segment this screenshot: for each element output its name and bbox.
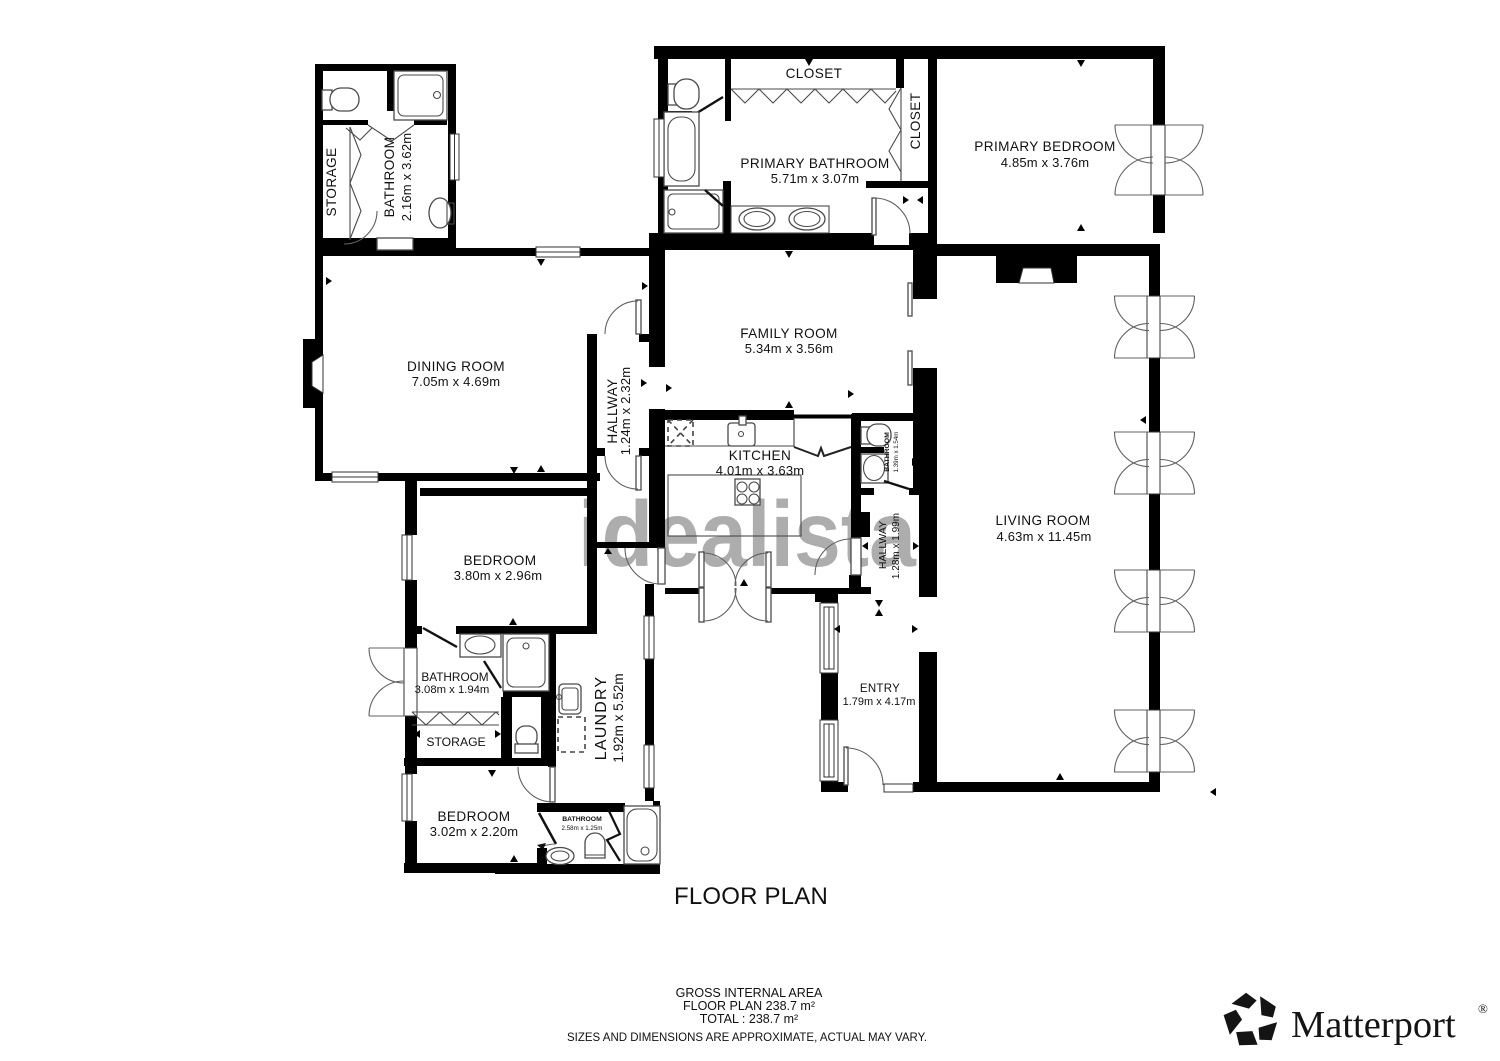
svg-text:3.80m x 2.96m: 3.80m x 2.96m <box>454 568 543 583</box>
svg-text:BATHROOM: BATHROOM <box>884 432 891 472</box>
svg-text:FLOOR PLAN: FLOOR PLAN <box>674 883 828 910</box>
svg-text:1.79m x 4.17m: 1.79m x 4.17m <box>843 696 916 708</box>
svg-text:3.02m x 2.20m: 3.02m x 2.20m <box>430 824 519 839</box>
svg-text:2.16m x 3.62m: 2.16m x 3.62m <box>399 133 414 222</box>
svg-text:BATHROOM: BATHROOM <box>562 816 602 823</box>
svg-text:KITCHEN: KITCHEN <box>729 448 791 463</box>
svg-text:2.58m x 1.25m: 2.58m x 1.25m <box>562 825 603 832</box>
svg-text:BATHROOM: BATHROOM <box>421 670 488 684</box>
svg-text:4.01m x 3.63m: 4.01m x 3.63m <box>716 463 805 478</box>
svg-text:STORAGE: STORAGE <box>426 735 485 749</box>
svg-text:1.24m x 2.32m: 1.24m x 2.32m <box>618 367 633 456</box>
svg-text:4.85m x 3.76m: 4.85m x 3.76m <box>1001 155 1090 170</box>
svg-text:1.39m x 1.54m: 1.39m x 1.54m <box>893 432 900 473</box>
svg-text:CLOSET: CLOSET <box>908 93 923 150</box>
svg-text:5.34m x 3.56m: 5.34m x 3.56m <box>745 341 834 356</box>
svg-text:Matterport: Matterport <box>1291 1004 1456 1046</box>
svg-text:BEDROOM: BEDROOM <box>437 809 510 824</box>
svg-text:SIZES AND DIMENSIONS ARE APPRO: SIZES AND DIMENSIONS ARE APPROXIMATE, AC… <box>567 1032 927 1044</box>
svg-text:7.05m x 4.69m: 7.05m x 4.69m <box>412 374 501 389</box>
svg-text:ENTRY: ENTRY <box>860 683 900 695</box>
svg-text:BATHROOM: BATHROOM <box>382 137 397 218</box>
svg-text:FAMILY ROOM: FAMILY ROOM <box>740 326 838 341</box>
svg-text:FLOOR PLAN 238.7 m²: FLOOR PLAN 238.7 m² <box>683 999 815 1013</box>
svg-text:3.08m x 1.94m: 3.08m x 1.94m <box>415 684 490 696</box>
svg-text:5.71m x 3.07m: 5.71m x 3.07m <box>771 171 860 186</box>
svg-text:PRIMARY BEDROOM: PRIMARY BEDROOM <box>974 139 1115 154</box>
svg-text:TOTAL : 238.7 m²: TOTAL : 238.7 m² <box>700 1012 798 1026</box>
svg-text:HALLWAY: HALLWAY <box>877 521 889 569</box>
svg-text:LIVING ROOM: LIVING ROOM <box>995 513 1090 528</box>
svg-text:1.92m x 5.52m: 1.92m x 5.52m <box>611 673 626 762</box>
svg-text:4.63m x 11.45m: 4.63m x 11.45m <box>996 529 1091 544</box>
svg-text:CLOSET: CLOSET <box>786 66 843 81</box>
svg-text:1.28m x 1.99m: 1.28m x 1.99m <box>891 513 902 579</box>
svg-text:PRIMARY BATHROOM: PRIMARY BATHROOM <box>740 156 889 171</box>
svg-text:BEDROOM: BEDROOM <box>463 553 536 568</box>
svg-text:®: ® <box>1478 1001 1488 1016</box>
svg-text:DINING ROOM: DINING ROOM <box>407 359 505 374</box>
svg-text:LAUNDRY: LAUNDRY <box>593 676 610 761</box>
svg-text:STORAGE: STORAGE <box>324 147 339 216</box>
svg-text:GROSS INTERNAL AREA: GROSS INTERNAL AREA <box>676 986 823 1000</box>
